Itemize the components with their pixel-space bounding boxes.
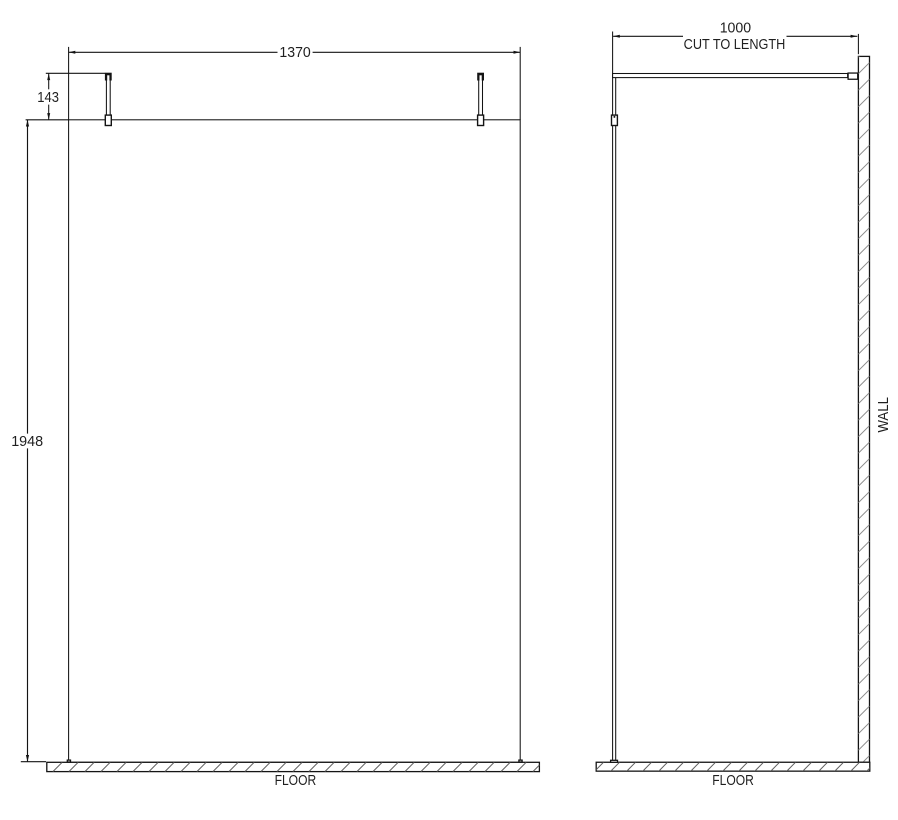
svg-text:1370: 1370 bbox=[279, 45, 310, 61]
svg-text:FLOOR: FLOOR bbox=[712, 772, 754, 789]
svg-text:143: 143 bbox=[37, 90, 59, 106]
svg-text:CUT TO LENGTH: CUT TO LENGTH bbox=[684, 37, 786, 53]
svg-text:1000: 1000 bbox=[720, 21, 751, 37]
svg-text:WALL: WALL bbox=[875, 397, 892, 433]
svg-text:1948: 1948 bbox=[11, 434, 43, 450]
svg-text:FLOOR: FLOOR bbox=[275, 772, 317, 789]
